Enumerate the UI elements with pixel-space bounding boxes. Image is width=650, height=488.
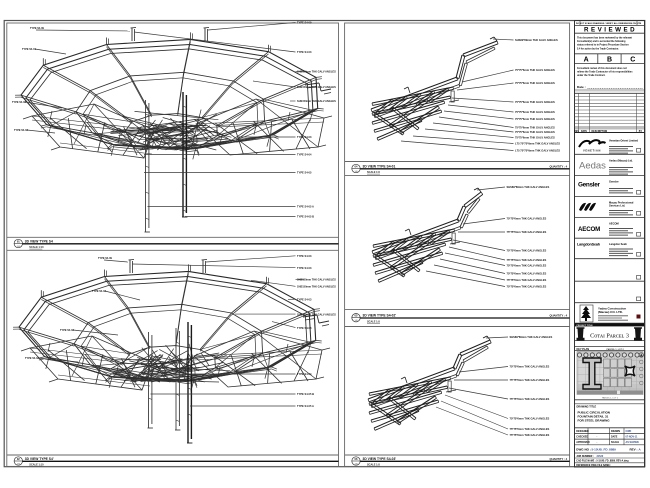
svg-text:75*75*6mm THK GALV ANGLES: 75*75*6mm THK GALV ANGLES — [510, 427, 550, 431]
svg-text:75*75*6mm THK GALV ANGLES: 75*75*6mm THK GALV ANGLES — [510, 378, 550, 382]
svg-text:TYPE S4-04: TYPE S4-04 — [297, 153, 312, 157]
svg-text:TYPE S4-05 B: TYPE S4-05 B — [297, 392, 314, 396]
svg-text:TYPE S4-05: TYPE S4-05 — [297, 171, 312, 175]
svg-text:TYPE S4-03: TYPE S4-03 — [297, 254, 312, 258]
svg-text:75*75*6mm THK GALV ANGLES: 75*75*6mm THK GALV ANGLES — [515, 117, 555, 121]
svg-text:Cᴏᴛᴀɪ Pᴀʀᴄᴇʟ 3: Cᴏᴛᴀɪ Pᴀʀᴄᴇʟ 3 — [590, 333, 629, 340]
svg-text:07-NOV-11: 07-NOV-11 — [626, 436, 638, 439]
svg-text:-: - — [597, 436, 598, 439]
svg-text:CHECKED: CHECKED — [576, 436, 588, 439]
svg-text:Venetian Orient Limited: Venetian Orient Limited — [609, 139, 638, 143]
svg-text:QUANTITY : 4: QUANTITY : 4 — [550, 314, 568, 318]
svg-text:TYPE S4-03: TYPE S4-03 — [297, 298, 312, 302]
svg-text:Services Ltd.: Services Ltd. — [609, 204, 625, 208]
svg-text:TYPE S4-03: TYPE S4-03 — [297, 326, 312, 330]
svg-text:75*75*6mm THK GALV ANGLES: 75*75*6mm THK GALV ANGLES — [515, 130, 555, 134]
svg-text:TYPE S4-02: TYPE S4-02 — [12, 101, 27, 104]
svg-text:75*75*6mm THK GALV ANGLES: 75*75*6mm THK GALV ANGLES — [510, 433, 550, 437]
svg-text:TYPE S4-02: TYPE S4-02 — [25, 357, 40, 360]
svg-text:75*75*6mm THK GALV ANGLES: 75*75*6mm THK GALV ANGLES — [515, 136, 555, 140]
svg-text:SHS89*89mm THK GALV ANGLES: SHS89*89mm THK GALV ANGLES — [507, 185, 550, 189]
svg-text:SHS150mm THK GALV ANGLES: SHS150mm THK GALV ANGLES — [297, 99, 336, 103]
svg-text:75*75*6mm THK GALV ANGLES: 75*75*6mm THK GALV ANGLES — [507, 258, 547, 262]
svg-text:75*75*6mm THK GALV ANGLES: 75*75*6mm THK GALV ANGLES — [507, 272, 547, 276]
svg-text:TYPE S4-05 B: TYPE S4-05 B — [297, 215, 314, 219]
svg-text:QUANTITY : 4: QUANTITY : 4 — [550, 164, 568, 168]
svg-text:5-15UB_FD_8889: 5-15UB_FD_8889 — [592, 448, 617, 452]
svg-text:status referred to in Pro: status referred to in Project Procedure … — [577, 44, 629, 47]
svg-text:A: A — [584, 57, 589, 64]
svg-text:TYPE S4-05 A: TYPE S4-05 A — [297, 205, 314, 209]
svg-text:PARCEL 1, LOT 2: PARCEL 1, LOT 2 — [602, 396, 619, 399]
svg-text:Langdon Seah: Langdon Seah — [609, 242, 627, 246]
svg-text:75*75*6mm THK GALV ANGLES: 75*75*6mm THK GALV ANGLES — [507, 249, 547, 253]
svg-text:75*75*6mm THK GALV ANGLES: 75*75*6mm THK GALV ANGLES — [507, 278, 547, 282]
svg-text:L75 75*75*6mm THK GALV ANGLES: L75 75*75*6mm THK GALV ANGLES — [515, 142, 560, 146]
svg-text:(Macau) CO. LTD.: (Macau) CO. LTD. — [598, 310, 623, 314]
svg-text:SCALE 1:8: SCALE 1:8 — [367, 320, 380, 323]
svg-text:SHS150mm THK GALV ANGLES: SHS150mm THK GALV ANGLES — [297, 278, 336, 282]
svg-text:AECOM: AECOM — [609, 222, 619, 226]
svg-text:SHS89*89mm THK GALV ANGLES: SHS89*89mm THK GALV ANGLES — [515, 38, 558, 42]
svg-text:31520: 31520 — [597, 455, 604, 458]
svg-text:TYPE S4-01: TYPE S4-01 — [22, 48, 37, 51]
svg-text:75*75*6mm THK GALV ANGLES: 75*75*6mm THK GALV ANGLES — [515, 126, 555, 130]
svg-text:TYPE S4-03: TYPE S4-03 — [297, 50, 312, 54]
svg-text:DATE: DATE — [611, 436, 618, 439]
svg-text:REV :: REV : — [630, 448, 638, 452]
svg-text:FOR STEEL DRAWING: FOR STEEL DRAWING — [578, 418, 611, 422]
svg-text:TYPE S4-05 A: TYPE S4-05 A — [297, 404, 314, 408]
svg-text:TYPE S4-02: TYPE S4-02 — [60, 329, 75, 332]
svg-text:relieve the Trade Contracto: relieve the Trade Contractor of his resp… — [577, 70, 633, 73]
svg-text:SCALE 1:10: SCALE 1:10 — [29, 464, 44, 467]
svg-text:DESIGNED: DESIGNED — [576, 430, 589, 433]
svg-text:SHS89*89mm THK GALV ANGLES: SHS89*89mm THK GALV ANGLES — [510, 335, 553, 339]
svg-text:SHS150mm THK GALV ANGLES: SHS150mm THK GALV ANGLES — [297, 312, 336, 316]
svg-text:SHS150mm THK GALV ANGLES: SHS150mm THK GALV ANGLES — [297, 70, 336, 74]
svg-text:75*75*6mm THK GALV ANGLES: 75*75*6mm THK GALV ANGLES — [507, 264, 547, 268]
svg-text:DRAWING TITLE: DRAWING TITLE — [577, 405, 597, 408]
svg-text:Date :: Date : — [577, 85, 586, 89]
svg-text:75*75*6mm THK GALV ANGLES: 75*75*6mm THK GALV ANGLES — [510, 365, 550, 369]
svg-text:AS SHOWN: AS SHOWN — [626, 441, 639, 444]
svg-text:QUANTITY : 4: QUANTITY : 4 — [550, 457, 568, 461]
svg-text:TYPE S4-09: TYPE S4-09 — [98, 257, 113, 260]
svg-text:TYPE S4-02: TYPE S4-02 — [92, 290, 107, 293]
svg-text:LangdonSeah: LangdonSeah — [577, 243, 601, 247]
svg-text:TYPE S4-02: TYPE S4-02 — [14, 129, 29, 132]
svg-text:Consultant(s) and is accord: Consultant(s) and is accorded the follow… — [577, 40, 626, 43]
svg-text:DO NOT SCALE DRAWINGS. VERIFY: DO NOT SCALE DRAWINGS. VERIFY ALL DIMENS… — [576, 22, 642, 25]
svg-text:Gensler: Gensler — [609, 180, 619, 184]
svg-text:75*75*6mm THK GALV ANGLES: 75*75*6mm THK GALV ANGLES — [515, 68, 555, 72]
svg-text:75*75*6mm THK GALV ANGLES: 75*75*6mm THK GALV ANGLES — [515, 81, 555, 85]
svg-text:REFERENCE DWG FILE NAME :: REFERENCE DWG FILE NAME : — [576, 464, 611, 467]
svg-text:A: A — [639, 448, 642, 452]
svg-text:SCALE 1:8: SCALE 1:8 — [367, 171, 380, 174]
svg-text:TYPE S4-03: TYPE S4-03 — [297, 135, 312, 139]
svg-text:-: - — [597, 441, 598, 444]
svg-text:3D VIEW TYPE S4-03': 3D VIEW TYPE S4-03' — [363, 457, 397, 461]
svg-text:75*75*6mm THK GALV ANGLES: 75*75*6mm THK GALV ANGLES — [507, 285, 547, 289]
svg-text:VENETIAN: VENETIAN — [583, 149, 601, 153]
svg-text:DWG NO :: DWG NO : — [576, 448, 591, 452]
svg-text:CAD FILE NAME : 5-15UB_FD_8889: CAD FILE NAME : 5-15UB_FD_8889_REV-A.dwg — [576, 460, 629, 463]
svg-text:This document has been rev: This document has been reviewed by the r… — [577, 37, 632, 40]
svg-text:75*75*6mm THK GALV ANGLES: 75*75*6mm THK GALV ANGLES — [507, 217, 547, 221]
svg-text:75*75*6mm THK GALV ANGLES: 75*75*6mm THK GALV ANGLES — [515, 110, 555, 114]
svg-text:Aedas: Aedas — [579, 161, 606, 172]
svg-text:TYPE S4-03: TYPE S4-03 — [297, 266, 312, 270]
svg-text:SCALE 1:10: SCALE 1:10 — [29, 246, 44, 249]
svg-text:75*75*6mm THK GALV ANGLES: 75*75*6mm THK GALV ANGLES — [507, 230, 547, 234]
svg-text:AECOM: AECOM — [578, 226, 600, 233]
svg-text:Gensler: Gensler — [578, 182, 601, 189]
svg-text:75*75*6mm THK GALV ANGLES: 75*75*6mm THK GALV ANGLES — [510, 417, 550, 421]
svg-text:under the Trade Contract.: under the Trade Contract. — [577, 74, 606, 77]
svg-text:SHS150mm THK GALV ANGLES: SHS150mm THK GALV ANGLES — [297, 85, 336, 89]
svg-text:Consultant review of this: Consultant review of this document does … — [577, 67, 627, 70]
svg-text:SHS150mm THK GALV ANGLES: SHS150mm THK GALV ANGLES — [297, 285, 336, 289]
svg-text:R E V I E W E D: R E V I E W E D — [584, 26, 635, 33]
svg-text:3D VIEW TYPE S4-02': 3D VIEW TYPE S4-02' — [363, 314, 397, 318]
svg-text:3D VIEW TYPE S4': 3D VIEW TYPE S4' — [25, 457, 54, 461]
svg-text:TYPE S4-09: TYPE S4-09 — [297, 21, 312, 25]
svg-text:SCALE 1:8: SCALE 1:8 — [367, 464, 380, 467]
svg-text:75*75*6mm THK GALV ANGLES: 75*75*6mm THK GALV ANGLES — [510, 397, 550, 401]
svg-text:B: B — [607, 57, 612, 64]
svg-text:3D VIEW TYPE S4: 3D VIEW TYPE S4 — [25, 239, 53, 243]
svg-text:75*75*6mm THK GALV ANGLES: 75*75*6mm THK GALV ANGLES — [515, 100, 555, 104]
svg-text:JOB NUMBER :: JOB NUMBER : — [576, 455, 594, 458]
svg-text:3D VIEW TYPE S4-01: 3D VIEW TYPE S4-01 — [363, 164, 396, 168]
svg-text:5.4 for action by the Tra: 5.4 for action by the Trade Contractor. — [577, 47, 619, 50]
svg-text:APPROVED: APPROVED — [576, 441, 590, 444]
svg-text:Aedas (Macau) Ltd.: Aedas (Macau) Ltd. — [609, 159, 633, 163]
svg-text:DRAWN: DRAWN — [611, 430, 620, 433]
svg-text:CWD: CWD — [626, 430, 632, 433]
svg-text:TYPE S4-04: TYPE S4-04 — [297, 372, 312, 376]
svg-text:SCALE: SCALE — [611, 441, 620, 444]
svg-text:PROJECT TITLE: PROJECT TITLE — [577, 325, 594, 327]
svg-text:C: C — [630, 57, 635, 64]
svg-text:L75 75*75*6mm THK GALV ANGLES: L75 75*75*6mm THK GALV ANGLES — [515, 149, 560, 153]
svg-text:TYPE S4-09: TYPE S4-09 — [30, 27, 45, 30]
